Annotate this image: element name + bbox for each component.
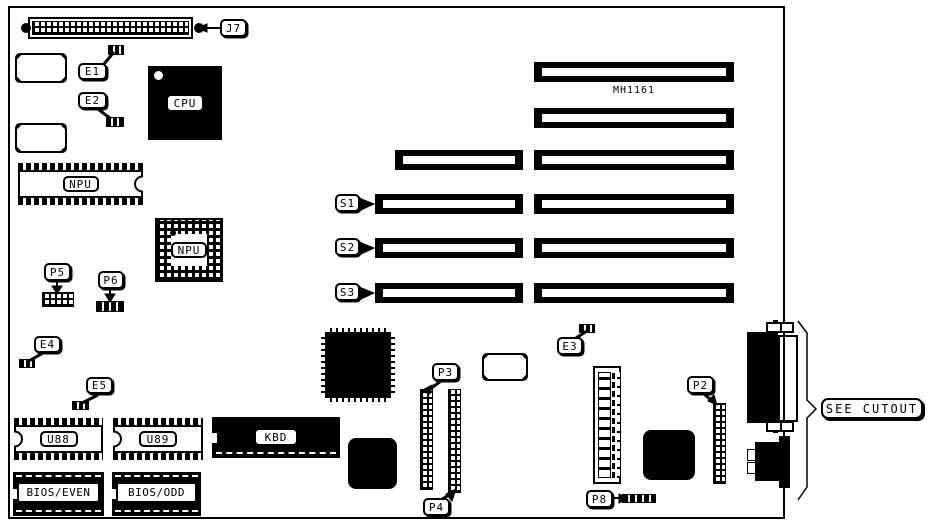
bios-even-chip: BIOS/EVEN: [13, 472, 104, 516]
expansion-slot-r3: [534, 150, 734, 170]
j7-end-pin-left: [21, 23, 31, 33]
u88-pins-bottom: [14, 453, 103, 460]
qfp-pins-right: [391, 337, 395, 393]
jumper-e4: [19, 359, 35, 368]
din-connector-body: [755, 442, 783, 481]
npu-dip-label: NPU: [63, 176, 99, 192]
p3-header: [420, 389, 433, 490]
j7-connector: [28, 17, 193, 39]
j7-pin-grid: [32, 21, 189, 35]
bios-odd-label: BIOS/ODD: [116, 482, 197, 503]
simm-contact-strip-2: [617, 372, 620, 478]
jumper-e3: [579, 324, 595, 333]
npu-pga-pin1-dot: [170, 230, 176, 236]
expansion-slot-s3: [375, 283, 523, 303]
crystal-oscillator-3: [482, 353, 528, 381]
expansion-slot-l1: [395, 150, 523, 170]
e4-callout: E4: [34, 336, 61, 353]
db-screws-top: [766, 322, 794, 333]
jumper-e5: [72, 401, 89, 410]
p5-callout: P5: [44, 263, 71, 281]
din-screw-1: [747, 449, 756, 461]
u89-notch: [113, 431, 122, 448]
npu-dip-socket: NPU: [18, 163, 143, 205]
kbd-label: KBD: [254, 428, 298, 446]
p6-callout: P6: [98, 271, 124, 289]
db-face-inner-line: [783, 337, 785, 420]
kbd-notch: [212, 433, 217, 443]
db-connector-face: [778, 335, 798, 422]
e3-callout: E3: [557, 337, 583, 355]
e1-callout: E1: [78, 63, 107, 80]
crystal-oscillator-2: [15, 123, 67, 153]
u89-body: U89: [113, 425, 203, 453]
u88-pins-top: [14, 418, 103, 425]
bios-odd-chip: BIOS/ODD: [112, 472, 201, 516]
expansion-slot-r4: [534, 194, 734, 214]
p2-callout: P2: [687, 376, 714, 394]
u88-notch: [14, 431, 23, 448]
board-code-text: MH1161: [534, 85, 734, 96]
p3-callout: P3: [432, 363, 459, 381]
cpu-pin1-dot: [154, 71, 163, 80]
expansion-slot-s2: [375, 238, 523, 258]
j7-callout: J7: [220, 19, 247, 37]
cutout-brace: [798, 321, 816, 500]
npu-dip-pins-top: [18, 163, 143, 170]
npu-pga-center: NPU: [171, 234, 207, 266]
p4-callout: P4: [423, 498, 450, 516]
p5-header: [42, 292, 74, 307]
p4-header: [448, 389, 461, 493]
see-cutout-callout: SEE CUTOUT: [821, 398, 923, 419]
qfp-pins-top: [330, 328, 386, 332]
u89-pins-bottom: [113, 453, 203, 460]
qfp-pins-left: [321, 337, 325, 393]
u89-label: U89: [139, 431, 177, 447]
motherboard-diagram: J7 E1 E2 CPU NPU NPU P5 P6 E4 E5: [0, 0, 932, 527]
expansion-slot-r2: [534, 108, 734, 128]
e5-callout: E5: [86, 377, 113, 394]
expansion-slot-r5: [534, 238, 734, 258]
e2-callout: E2: [78, 92, 107, 109]
s2-callout: S2: [335, 238, 360, 256]
u88-label: U88: [40, 431, 78, 447]
npu-pga-socket: NPU: [155, 218, 223, 282]
qfp-chip: [325, 332, 391, 398]
kbd-chip: KBD: [212, 417, 340, 458]
db-screws-bottom: [766, 421, 794, 432]
jumper-e2: [106, 117, 124, 127]
plcc-chip-2: [643, 430, 695, 480]
expansion-slot-s1: [375, 194, 523, 214]
p8-header: [622, 494, 656, 503]
jumper-e1: [108, 45, 124, 55]
npu-pga-label: NPU: [171, 242, 207, 258]
simm-contact-strip-1: [612, 372, 615, 478]
bios-even-label: BIOS/EVEN: [17, 482, 100, 503]
u88-socket: U88: [14, 418, 103, 460]
u89-socket: U89: [113, 418, 203, 460]
din-screw-2: [747, 462, 756, 474]
s3-callout: S3: [335, 283, 360, 301]
u88-body: U88: [14, 425, 103, 453]
p8-callout: P8: [586, 490, 613, 508]
db-connector-body: [747, 332, 773, 423]
plcc-chip-1: [348, 438, 397, 489]
npu-dip-notch: [134, 176, 143, 193]
cpu-label: CPU: [166, 94, 204, 112]
npu-dip-body: NPU: [18, 170, 143, 198]
p2-header: [713, 403, 726, 484]
simm-holes: [598, 372, 611, 478]
expansion-slot-r6: [534, 283, 734, 303]
cpu-chip: CPU: [148, 66, 222, 140]
crystal-oscillator-1: [15, 53, 67, 83]
expansion-slot-r1: [534, 62, 734, 82]
npu-dip-pins-bottom: [18, 198, 143, 205]
qfp-pins-bottom: [330, 398, 386, 402]
p6-header: [96, 301, 124, 312]
simm-socket: [593, 366, 621, 484]
s1-callout: S1: [335, 194, 360, 212]
j7-end-pin-right: [194, 23, 204, 33]
u89-pins-top: [113, 418, 203, 425]
